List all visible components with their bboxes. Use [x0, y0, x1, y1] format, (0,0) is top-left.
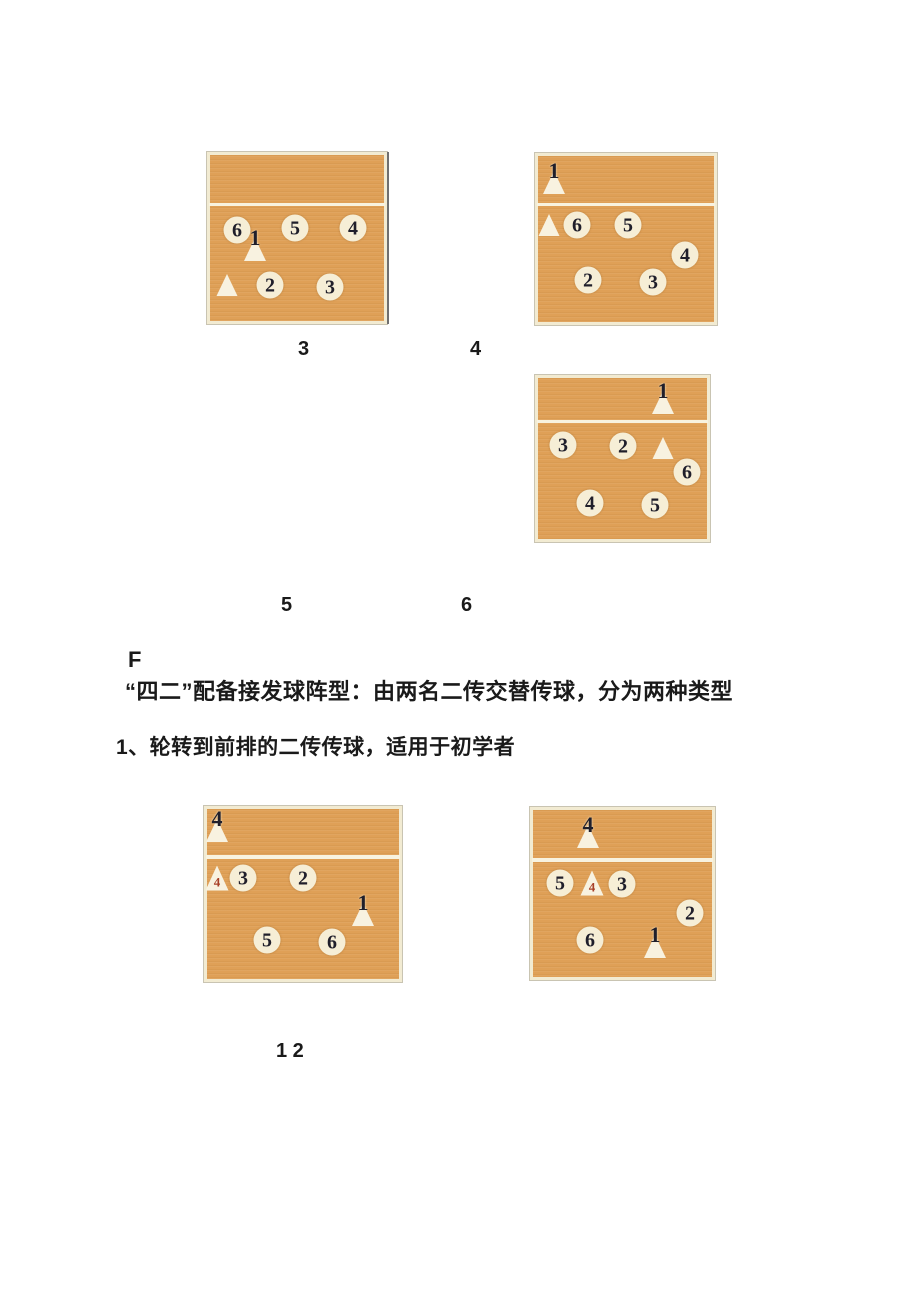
player-5-circle: 5 [642, 492, 669, 519]
player-2-circle: 2 [257, 272, 284, 299]
player-2-circle: 2 [610, 433, 637, 460]
figure-label-3: 3 [298, 338, 309, 361]
figure-label-6: 6 [461, 594, 472, 617]
server-1-triangle-marker: 1 [650, 382, 676, 414]
triangle-icon [217, 274, 238, 296]
player-5-circle: 5 [282, 215, 309, 242]
net-line [206, 855, 400, 859]
player-5-circle: 5 [547, 870, 574, 897]
triangle-icon [539, 214, 560, 236]
net-line [209, 203, 385, 206]
player-6-circle: 6 [319, 929, 346, 956]
server-1-triangle-marker: 1 [541, 162, 567, 194]
marker-number: 1 [549, 160, 560, 182]
net-line [537, 420, 708, 423]
court-diagram-figure-2: 4543261 [530, 807, 715, 980]
player-6-circle: 6 [564, 212, 591, 239]
setter-4-triangle: 4 [206, 866, 229, 891]
server-4-triangle-marker: 4 [575, 816, 601, 848]
formation-heading: “四二”配备接发球阵型：由两名二传交替传球，分为两种类型 [125, 674, 733, 706]
setter-4-triangle: 4 [581, 871, 604, 896]
marker-number: 1 [658, 380, 669, 402]
marker-number: 4 [589, 881, 596, 894]
setter-triangle [653, 437, 674, 459]
figure-label-1-2: 1 2 [276, 1040, 304, 1063]
player-4-circle: 4 [672, 242, 699, 269]
section-letter-f: F [128, 648, 141, 672]
formation-subheading: 1、轮转到前排的二传传球，适用于初学者 [116, 731, 515, 761]
marker-number: 4 [583, 814, 594, 836]
marker-number: 4 [214, 876, 221, 889]
net-line [537, 203, 715, 206]
player-3-circle: 3 [640, 269, 667, 296]
player-6-circle: 6 [577, 927, 604, 954]
net-line [532, 858, 713, 862]
player-3-circle: 3 [317, 274, 344, 301]
player-2-circle: 2 [290, 865, 317, 892]
player-4-circle: 4 [577, 490, 604, 517]
player-2-circle: 2 [677, 900, 704, 927]
player-4-circle: 4 [340, 215, 367, 242]
marker-number: 1 [650, 924, 661, 946]
marker-number: 1 [358, 892, 369, 914]
court-diagram-figure-1: 4432156 [204, 806, 402, 982]
marker-number: 4 [212, 808, 223, 830]
figure-label-5: 5 [281, 594, 292, 617]
setter-triangle [539, 214, 560, 236]
player-5-circle: 5 [615, 212, 642, 239]
figure-label-4: 4 [470, 338, 481, 361]
server-1-triangle-marker: 1 [242, 229, 268, 261]
court-diagram-figure-5-6: 132645 [535, 375, 710, 542]
marker-number: 1 [250, 227, 261, 249]
player-3-circle: 3 [230, 865, 257, 892]
server-4-triangle-marker: 4 [204, 810, 230, 842]
player-6-circle: 6 [674, 459, 701, 486]
setter-1-triangle-marker: 1 [642, 926, 668, 958]
triangle-icon [653, 437, 674, 459]
player-3-circle: 3 [550, 432, 577, 459]
player-5-circle: 5 [254, 927, 281, 954]
setter-triangle [217, 274, 238, 296]
setter-1-triangle-marker: 1 [350, 894, 376, 926]
player-2-circle: 2 [575, 267, 602, 294]
court-diagram-figure-3: 615423 [207, 152, 387, 324]
document-page: 615423 165423 132645 3 4 5 6 F “四二”配备接发球… [0, 0, 920, 1301]
court-diagram-figure-4: 165423 [535, 153, 717, 325]
player-3-circle: 3 [609, 871, 636, 898]
